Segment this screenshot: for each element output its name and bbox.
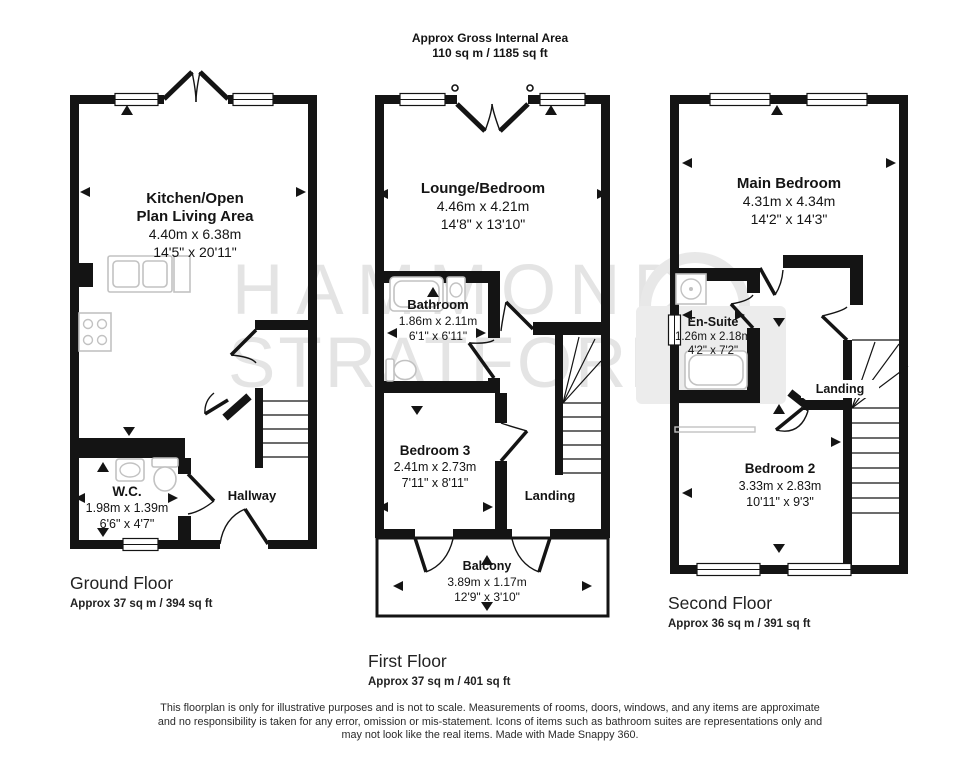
radiator-icon	[675, 427, 755, 432]
landing-room-name: Landing	[816, 382, 865, 396]
title-line2: 110 sq m / 1185 sq ft	[0, 46, 980, 61]
ensuite-room-name: En-Suite	[688, 315, 739, 329]
lounge-dims-metric: 4.46m x 4.21m	[437, 198, 530, 214]
ground-floor-name: Ground Floor	[70, 573, 213, 594]
toilet-icon	[152, 458, 178, 491]
stairs-icon	[563, 337, 601, 473]
second-floor-plan: Main Bedroom 4.31m x 4.34m 14'2" x 14'3"…	[655, 63, 920, 593]
bedroom3-dims-imperial: 7'11" x 8'11"	[402, 476, 469, 490]
landing-room-name: Landing	[525, 488, 576, 503]
disclaimer-line2: and no responsibility is taken for any e…	[0, 716, 980, 730]
bedroom2-dims-metric: 3.33m x 2.83m	[739, 479, 822, 493]
wc-room-name: W.C.	[112, 484, 141, 499]
stairs-icon	[263, 401, 308, 457]
bathroom-room-name: Bathroom	[407, 297, 468, 312]
wc-basin-icon	[116, 459, 144, 481]
hallway-room-name: Hallway	[228, 488, 277, 503]
bedroom3-room-name: Bedroom 3	[400, 443, 471, 458]
french-doors-icon	[164, 72, 228, 102]
ensuite-dims-metric: 1.26m x 2.18m	[675, 331, 751, 343]
kitchen-room-name1: Kitchen/Open	[146, 190, 244, 207]
wc-dims-imperial: 6'6" x 4'7"	[100, 517, 155, 531]
second-floor-name: Second Floor	[668, 593, 811, 614]
main-bedroom-dims-metric: 4.31m x 4.34m	[743, 193, 836, 209]
second-floor-area: Approx 36 sq m / 391 sq ft	[668, 618, 811, 630]
gross-internal-area-title: Approx Gross Internal Area 110 sq m / 11…	[0, 31, 980, 61]
room-labels: Main Bedroom 4.31m x 4.34m 14'2" x 14'3"…	[675, 175, 864, 509]
toilet-icon	[386, 359, 416, 381]
balcony-room-name: Balcony	[463, 559, 512, 573]
bedroom2-room-name: Bedroom 2	[745, 461, 816, 476]
kitchen-dims-metric: 4.40m x 6.38m	[149, 226, 242, 242]
first-floor-area: Approx 37 sq m / 401 sq ft	[368, 676, 511, 688]
wc-dims-metric: 1.98m x 1.39m	[86, 501, 169, 515]
lounge-room-name: Lounge/Bedroom	[421, 180, 545, 197]
second-floor-label: Second Floor Approx 36 sq m / 391 sq ft	[668, 593, 811, 630]
ground-floor-plan: Kitchen/Open Plan Living Area 4.40m x 6.…	[60, 63, 325, 570]
disclaimer-line3: may not look like the real items. Made w…	[0, 729, 980, 743]
floorplan-page: HAMMOND STRATFORD Approx Gross Internal …	[0, 0, 980, 758]
lounge-dims-imperial: 14'8" x 13'10"	[441, 216, 526, 232]
first-floor-label: First Floor Approx 37 sq m / 401 sq ft	[368, 651, 511, 688]
bathroom-dims-imperial: 6'1" x 6'11"	[409, 329, 467, 343]
disclaimer-line1: This floorplan is only for illustrative …	[0, 702, 980, 716]
disclaimer: This floorplan is only for illustrative …	[0, 702, 980, 743]
ground-floor-area: Approx 37 sq m / 394 sq ft	[70, 598, 213, 610]
ground-floor-label: Ground Floor Approx 37 sq m / 394 sq ft	[70, 573, 213, 610]
room-labels: Kitchen/Open Plan Living Area 4.40m x 6.…	[86, 190, 277, 531]
stove-icon	[79, 313, 111, 351]
title-line1: Approx Gross Internal Area	[0, 31, 980, 46]
shower-icon	[676, 274, 706, 304]
first-floor-name: First Floor	[368, 651, 511, 672]
ensuite-dims-imperial: 4'2" x 7'2"	[688, 345, 738, 357]
windows	[400, 94, 585, 106]
bedroom2-dims-imperial: 10'11" x 9'3"	[746, 495, 814, 509]
main-bedroom-dims-imperial: 14'2" x 14'3"	[751, 211, 828, 227]
french-doors-icon	[452, 85, 533, 131]
bedroom3-dims-metric: 2.41m x 2.73m	[394, 460, 477, 474]
kitchen-room-name2: Plan Living Area	[137, 208, 255, 225]
first-floor-plan: Lounge/Bedroom 4.46m x 4.21m 14'8" x 13'…	[365, 63, 620, 633]
kitchen-dims-imperial: 14'5" x 20'11"	[153, 244, 237, 260]
bathroom-dims-metric: 1.86m x 2.11m	[399, 314, 477, 328]
kitchen-sink-icon	[108, 256, 190, 292]
balcony-dims-metric: 3.89m x 1.17m	[447, 575, 526, 589]
main-bedroom-room-name: Main Bedroom	[737, 175, 841, 192]
balcony-dims-imperial: 12'9" x 3'10"	[454, 590, 520, 604]
